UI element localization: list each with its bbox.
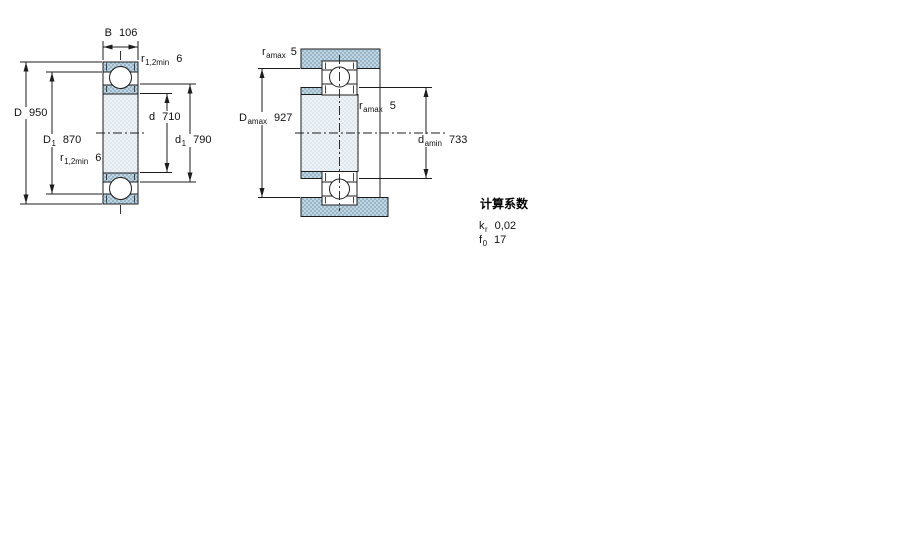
label-D1: D1870: [41, 134, 83, 147]
factor-f0: f017: [479, 234, 506, 247]
ball-bottom: [110, 178, 132, 200]
label-ramax-top: ramax5: [262, 46, 297, 59]
bore-section: [103, 94, 138, 173]
centerlines-right: [295, 55, 447, 211]
label-B: B106: [103, 27, 139, 39]
dim-D: [20, 62, 102, 204]
dim-D1: [46, 72, 102, 194]
label-damin: damin733: [416, 134, 469, 147]
factor-kr: kr0,02: [479, 220, 516, 233]
label-r12min-top: r1,2min6: [141, 53, 182, 66]
dim-d: [140, 94, 172, 173]
abutment-drawing: [295, 49, 447, 217]
bearing-drawing-page: B106 r1,2min6 D950 D1870 r1,2min6 d710 d…: [0, 0, 900, 560]
technical-drawing: [0, 0, 900, 560]
shaft-shoulder-top: [301, 88, 322, 95]
label-Damax: Damax927: [237, 112, 294, 125]
label-d: d710: [147, 111, 182, 123]
shaft-shoulder-bottom: [301, 172, 322, 179]
label-ramax-mid: ramax5: [359, 100, 396, 113]
label-D: D950: [12, 107, 49, 119]
label-r12min-bottom: r1,2min6: [60, 152, 101, 165]
calculation-factors-title: 计算系数: [480, 198, 528, 210]
bearing-cross-section: [96, 51, 145, 215]
dim-Damax: [258, 69, 300, 198]
label-d1: d1790: [173, 134, 213, 147]
ball-top: [110, 67, 132, 89]
